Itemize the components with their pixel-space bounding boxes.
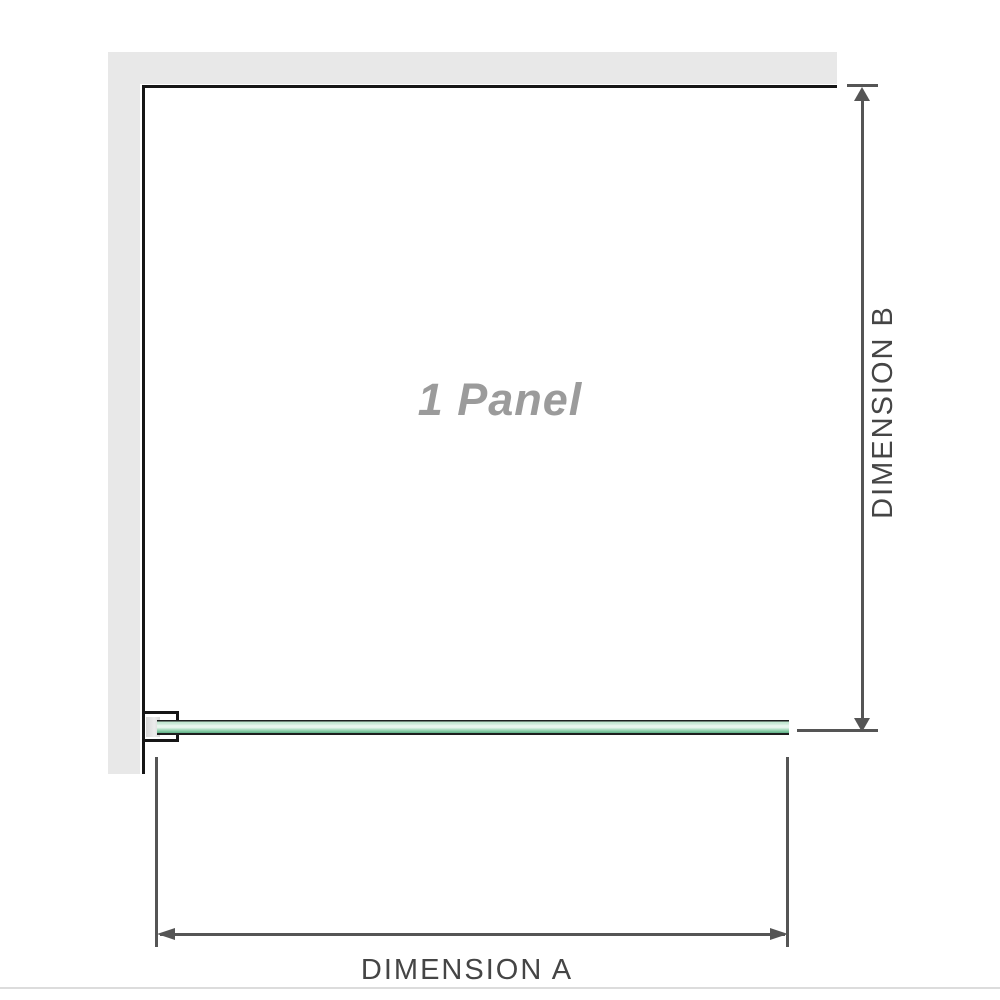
dimension-b-line [861, 92, 864, 724]
arrow-left-icon [157, 928, 175, 940]
wall-inner-edge-left [142, 85, 145, 774]
wall-inner-edge-top [142, 85, 837, 88]
arrow-up-icon [854, 87, 870, 101]
dimension-a-label: DIMENSION A [317, 952, 617, 988]
dimension-b-tick-top [847, 84, 878, 87]
dimension-a-tick-left [155, 757, 158, 947]
dimension-b-label: DIMENSION B [867, 312, 899, 512]
panel-count-label: 1 Panel [350, 372, 650, 428]
wall-left [108, 52, 140, 774]
wall-top [108, 52, 837, 84]
dimension-a-tick-right [786, 757, 789, 947]
glass-panel [157, 720, 789, 735]
installation-diagram: 1 Panel DIMENSION B DIMENSION A [0, 0, 1000, 1000]
bottom-divider [0, 987, 1000, 989]
dimension-a-line [160, 933, 785, 936]
dimension-b-tick-bottom [797, 729, 878, 732]
